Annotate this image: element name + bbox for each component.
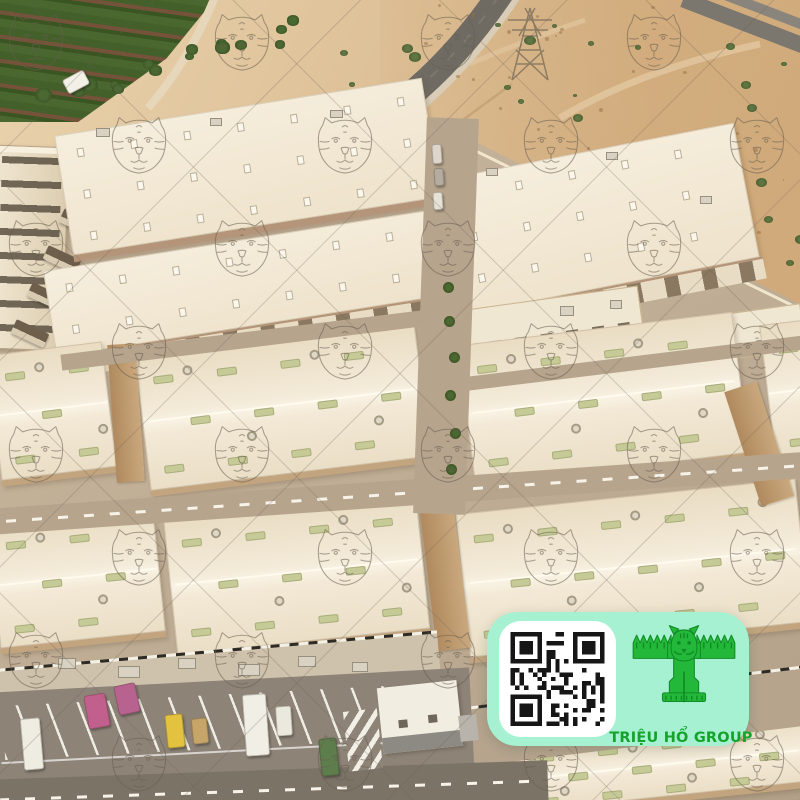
logo-area: TRIỆU HỔ GROUP	[623, 614, 745, 744]
badge-label: TRIỆU HỔ GROUP	[609, 730, 753, 746]
office-building	[0, 145, 70, 351]
trieu-ho-group-badge: TRIỆU HỔ GROUP	[487, 612, 749, 746]
qr-code	[510, 632, 605, 726]
aerial-photo-canvas: TRIỆU HỔ GROUP	[0, 0, 800, 800]
office-roofline	[0, 146, 69, 155]
qr-code-panel	[499, 621, 616, 737]
hatched-crosswalk	[343, 708, 383, 771]
gatehouse-building	[377, 680, 463, 754]
gatehouse-window	[428, 714, 438, 723]
gatehouse-annex	[458, 714, 479, 742]
gatehouse-window	[398, 719, 408, 728]
tiger-t-logo	[628, 622, 740, 712]
office-windows	[0, 156, 62, 342]
